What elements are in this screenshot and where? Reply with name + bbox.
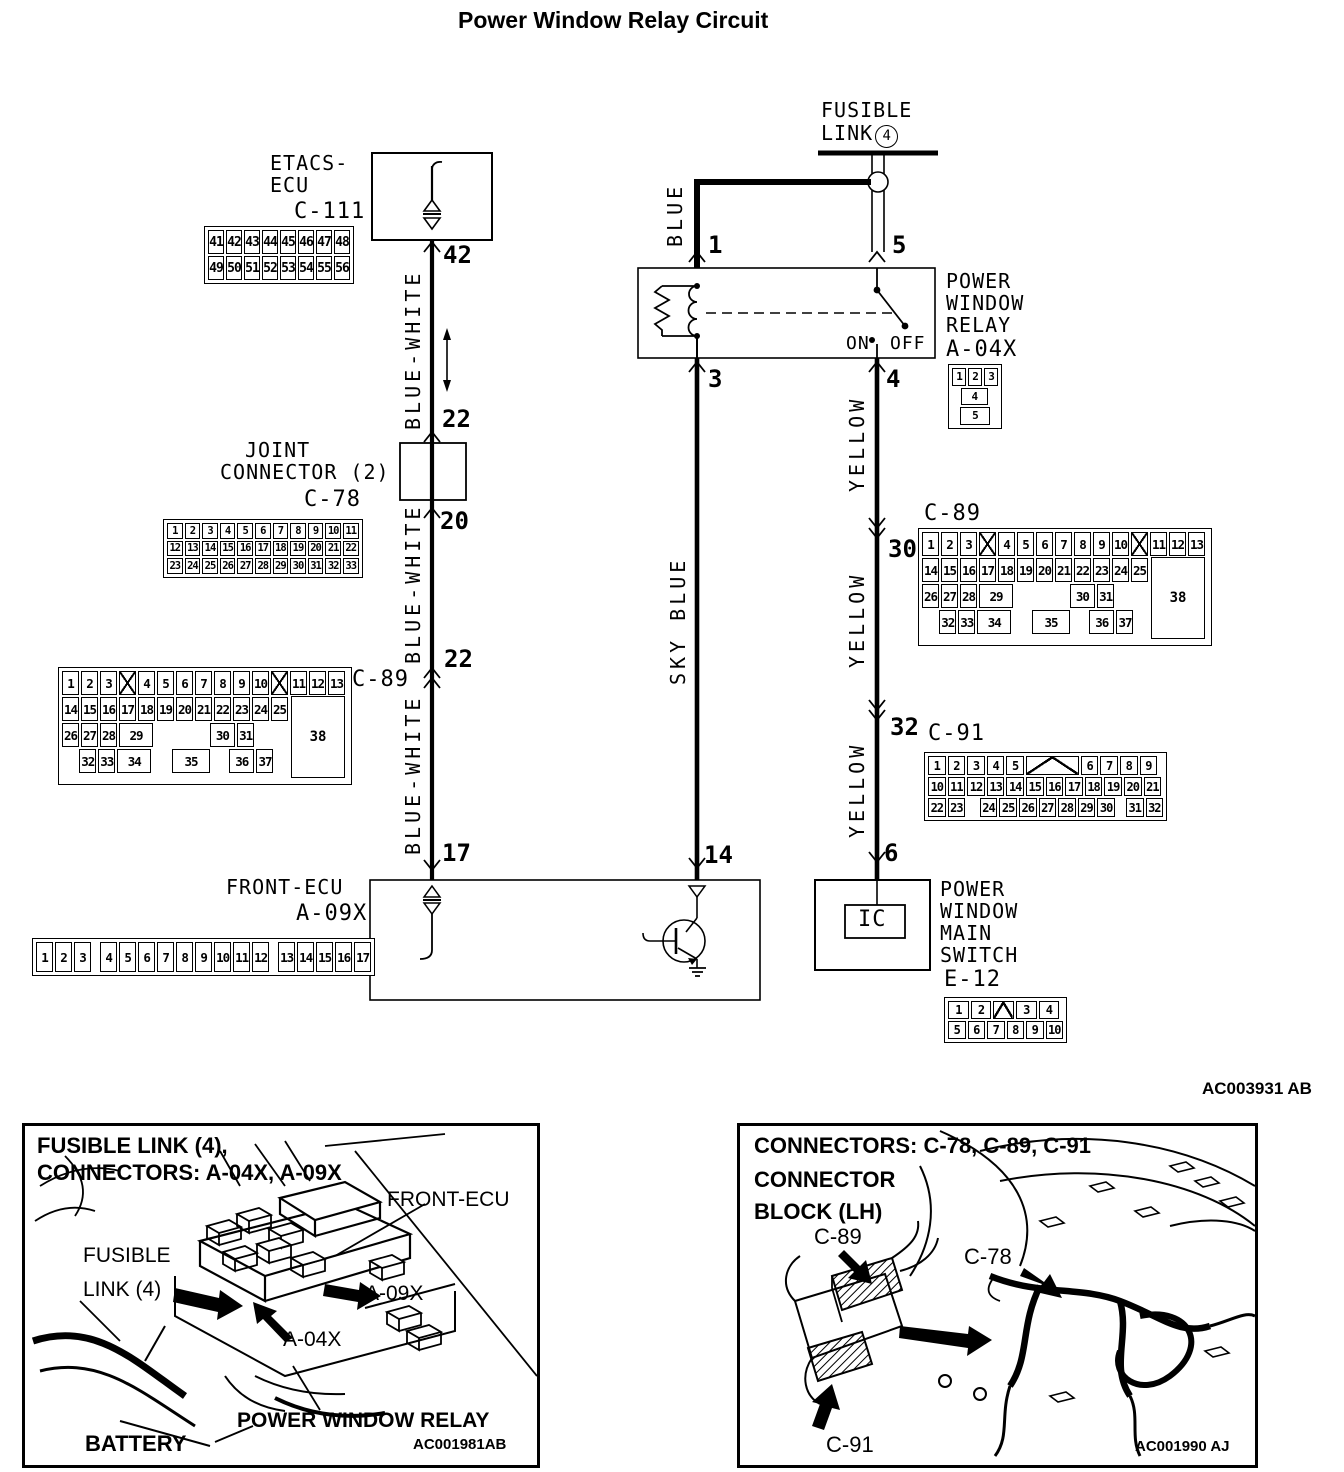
pin-cell: [62, 749, 77, 773]
panel-left-battery: BATTERY: [85, 1431, 186, 1456]
connector-e12: 12345678910: [944, 997, 1067, 1043]
pin-cell: 29: [273, 558, 289, 574]
pin-cell: 4: [138, 671, 155, 695]
e12-id: E-12: [944, 968, 1001, 992]
pin-cell: 1: [62, 671, 79, 695]
panel-left-relay: POWER WINDOW RELAY: [237, 1409, 489, 1433]
pin-cell: 21: [1055, 558, 1072, 582]
front-ecu-label: FRONT-ECU: [226, 876, 343, 898]
c78-id: C-78: [304, 488, 361, 512]
pin-cell: 29: [979, 584, 1013, 608]
pin-cell: 4: [1039, 1001, 1060, 1019]
pin-cell: 33: [98, 749, 115, 773]
pin-cell: 6: [968, 1021, 986, 1039]
pin-cell: [155, 723, 208, 747]
pin-cell: 34: [117, 749, 151, 773]
pin-cell: 7: [987, 1021, 1005, 1039]
pin-cell: 15: [1026, 777, 1044, 796]
pin-cell: 7: [1100, 756, 1118, 775]
pin-cell: 5: [157, 671, 174, 695]
pin-cell: 56: [334, 256, 350, 280]
pin-cell: 9: [308, 523, 324, 539]
pin-cell: 14: [1006, 777, 1024, 796]
pin-cell: 51: [244, 256, 260, 280]
pin-30: 30: [888, 536, 917, 562]
pin-cell: 20: [308, 541, 324, 557]
pin-cell: 3: [100, 671, 117, 695]
pin-cell: 33: [343, 558, 359, 574]
pin-cell: 17: [354, 942, 371, 972]
pin-cell: 15: [81, 697, 98, 721]
pin-cell: 4: [987, 756, 1005, 775]
pin-cell: 11: [1150, 532, 1167, 556]
wire-blue-white-3: BLUE-WHITE: [401, 695, 425, 855]
pin-cell: 34: [977, 610, 1011, 634]
pin-cell: 35: [172, 749, 209, 773]
fusible-link-label-2: LINK4: [821, 122, 898, 148]
pin-cell: [992, 407, 998, 425]
pin-cell: 25: [202, 558, 218, 574]
pin-cell: 22: [214, 697, 231, 721]
c89-pin-38: 38: [1151, 557, 1205, 639]
pin-cell: 15: [316, 942, 333, 972]
pin-cell: [1013, 610, 1030, 634]
pin-cell: 47: [316, 230, 332, 254]
pin-cell: 36: [229, 749, 255, 773]
pin-cell: 45: [280, 230, 296, 254]
pin-cell: 30: [290, 558, 306, 574]
pin-cell: 1: [928, 756, 946, 775]
pin-cell: 5: [948, 1021, 966, 1039]
sky-blue-wire: [689, 358, 705, 880]
pin-cell: 13: [987, 777, 1005, 796]
pin-cell: 14: [202, 541, 218, 557]
pin-cell: 24: [980, 798, 998, 817]
pin-cell: 2: [81, 671, 98, 695]
pin-cell: 8: [1120, 756, 1138, 775]
panel-right-c89: C-89: [814, 1224, 862, 1249]
pin-cell: 5: [960, 407, 991, 425]
pin-cell: 17: [979, 558, 996, 582]
pin-cell: 19: [1104, 777, 1122, 796]
two-way-arrow: [443, 328, 451, 392]
panel-left-code: AC001981AB: [413, 1436, 506, 1453]
c111-id: C-111: [294, 200, 365, 224]
pin-cell: 13: [185, 541, 201, 557]
pin-cell: 32: [79, 749, 96, 773]
connector-a09x: 1234567891011121314151617: [32, 938, 375, 976]
pin-20: 20: [440, 508, 469, 534]
pin-cell: 31: [1097, 584, 1114, 608]
pin-cell: 22: [928, 798, 946, 817]
joint-connector-label-1: JOINT: [245, 439, 310, 461]
ic-label: IC: [858, 908, 887, 932]
pin-cell: 27: [1039, 798, 1057, 817]
pin-cell: 4: [100, 942, 117, 972]
pin-cell: 36: [1089, 610, 1115, 634]
pin-cell: 6: [1036, 532, 1053, 556]
pin-cell: [1015, 584, 1068, 608]
pin-cell: 17: [255, 541, 271, 557]
panel-right-sub-1: CONNECTOR: [754, 1166, 895, 1194]
pin-cell: 5: [1017, 532, 1034, 556]
main-switch-label-4: SWITCH: [940, 944, 1018, 966]
fusible-link-number: 4: [875, 125, 898, 148]
pin-cell: [212, 749, 227, 773]
pin-cell: 12: [1169, 532, 1186, 556]
pin-cell: 53: [280, 256, 296, 280]
pin-cell: 43: [244, 230, 260, 254]
pin-cell: 19: [290, 541, 306, 557]
pin-cell: 20: [1124, 777, 1142, 796]
panel-left-title-2: CONNECTORS: A-04X, A-09X: [37, 1159, 342, 1187]
pin-cell: 20: [176, 697, 193, 721]
pin-cell: 10: [1046, 1021, 1064, 1039]
c89-pin-38: 38: [291, 696, 345, 778]
pin-cell: 31: [308, 558, 324, 574]
pin-cell: 44: [262, 230, 278, 254]
pin-cell: 4: [961, 388, 988, 406]
main-switch-label-2: WINDOW: [940, 900, 1018, 922]
panel-left-a09x: A-09X: [365, 1282, 423, 1306]
front-ecu-box: [370, 880, 760, 1000]
yellow-wire: [869, 358, 885, 880]
panel-left-a04x: A-04X: [283, 1328, 341, 1352]
pin-cell: 54: [298, 256, 314, 280]
pin-14: 14: [704, 842, 733, 868]
pin-cell: 16: [1046, 777, 1064, 796]
pin-cell: 50: [226, 256, 242, 280]
pin-cell: 30: [1070, 584, 1096, 608]
pin-cell: 27: [941, 584, 958, 608]
pin-cell: [119, 671, 136, 695]
pin-cell: 23: [1093, 558, 1110, 582]
pin-cell: [979, 532, 996, 556]
pin-cell: 5: [237, 523, 253, 539]
pin-32: 32: [890, 714, 919, 740]
wire-blue: BLUE: [663, 183, 687, 247]
pin-cell: 52: [262, 256, 278, 280]
connector-c78: 1234567891011121314151617181920212223242…: [163, 519, 363, 578]
pin-cell: [990, 388, 998, 406]
pin-cell: 31: [1126, 798, 1144, 817]
relay-label-1: POWER: [946, 270, 1011, 292]
pin-cell: 24: [1112, 558, 1129, 582]
pin-cell: 11: [948, 777, 966, 796]
pin-6: 6: [884, 840, 898, 866]
pin-cell: 12: [167, 541, 183, 557]
pin-cell: [1131, 532, 1148, 556]
pin-cell: 6: [1081, 756, 1099, 775]
pin-cell: 3: [74, 942, 91, 972]
pin-cell: 3: [984, 368, 998, 386]
pin-cell: 1: [922, 532, 939, 556]
pin-cell: 3: [967, 756, 985, 775]
pin-cell: 8: [214, 671, 231, 695]
pin-cell: 1: [952, 368, 966, 386]
pin-cell: 26: [220, 558, 236, 574]
pin-cell: 17: [119, 697, 136, 721]
pin-cell: 13: [328, 671, 345, 695]
diagram-code: AC003931 AB: [1202, 1080, 1312, 1099]
pin-cell: 14: [62, 697, 79, 721]
wire-blue-white-2: BLUE-WHITE: [401, 504, 425, 664]
pin-cell: 12: [252, 942, 269, 972]
pin-cell: 13: [278, 942, 295, 972]
etacs-label-1: ETACS-: [270, 152, 348, 174]
pin-42: 42: [443, 242, 472, 268]
pin-cell: 19: [157, 697, 174, 721]
pin-cell: 5: [1006, 756, 1024, 775]
pin-3: 3: [708, 366, 722, 392]
pin-cell: 8: [1074, 532, 1091, 556]
pin-cell: 8: [1007, 1021, 1025, 1039]
pin-cell: 7: [1055, 532, 1072, 556]
pin-cell: 31: [237, 723, 254, 747]
pin-cell: 10: [214, 942, 231, 972]
panel-right-title: CONNECTORS: C-78, C-89, C-91: [754, 1132, 1091, 1160]
relay-on-label: ON: [846, 334, 870, 354]
pin-cell: [967, 798, 978, 817]
pin-cell: 16: [960, 558, 977, 582]
pin-cell: 10: [325, 523, 341, 539]
wire-yellow-2: YELLOW: [845, 572, 869, 668]
pin-cell: 10: [1112, 532, 1129, 556]
pin-cell: 11: [233, 942, 250, 972]
fusible-link-label-1: FUSIBLE: [821, 99, 912, 121]
pin-cell: 4: [998, 532, 1015, 556]
pin-cell: 9: [195, 942, 212, 972]
relay-off-label: OFF: [890, 334, 926, 354]
connector-a04x: 12345: [948, 364, 1002, 429]
a09x-id: A-09X: [296, 902, 367, 926]
wiring-diagram-page: Power Window Relay Circuit ETACS- ECU C-…: [0, 0, 1344, 1472]
pin-cell: 30: [1097, 798, 1115, 817]
c89-right-id: C-89: [924, 502, 981, 526]
pin-cell: 8: [290, 523, 306, 539]
pin-cell: [952, 407, 958, 425]
pin-cell: 2: [968, 368, 982, 386]
pin-cell: 11: [290, 671, 307, 695]
pin-cell: 26: [62, 723, 79, 747]
pin-17: 17: [442, 840, 471, 866]
pin-cell: 26: [1019, 798, 1037, 817]
pin-cell: 6: [176, 671, 193, 695]
panel-right-code: AC001990 AJ: [1135, 1438, 1230, 1455]
panel-fusible-link: FUSIBLE LINK (4), CONNECTORS: A-04X, A-0…: [22, 1123, 540, 1468]
pin-cell: 2: [185, 523, 201, 539]
pin-cell: 10: [252, 671, 269, 695]
pin-cell: [952, 388, 959, 406]
pin-cell: 18: [1085, 777, 1103, 796]
pin-cell: 5: [119, 942, 136, 972]
pin-cell: 1: [948, 1001, 969, 1019]
pin-cell: [271, 942, 276, 972]
connector-c89-right: 38 1234567891011121314151617181920212223…: [918, 528, 1212, 646]
pin-cell: 21: [195, 697, 212, 721]
pin-1: 1: [708, 232, 722, 258]
pin-cell: 17: [1065, 777, 1083, 796]
pin-cell: 2: [55, 942, 72, 972]
etacs-ecu-box: [372, 153, 492, 240]
pin-cell: 21: [1144, 777, 1162, 796]
fusible-link-symbol: [818, 153, 938, 262]
pin-cell: 15: [220, 541, 236, 557]
pin-cell: 26: [922, 584, 939, 608]
pin-cell: 24: [252, 697, 269, 721]
blue-white-wire: [424, 240, 440, 880]
page-title: Power Window Relay Circuit: [458, 8, 768, 33]
pin-cell: 8: [176, 942, 193, 972]
pin-cell: 13: [1188, 532, 1205, 556]
pin-cell: 9: [233, 671, 250, 695]
pin-cell: [93, 942, 98, 972]
pin-cell: 16: [237, 541, 253, 557]
panel-left-frontecu: FRONT-ECU: [387, 1188, 510, 1212]
connector-c91: 1234567891011121314151617181920212223242…: [924, 752, 1167, 821]
pin-cell: 14: [922, 558, 939, 582]
pin-cell: 35: [1032, 610, 1069, 634]
pin-cell: 18: [998, 558, 1015, 582]
pin-cell: 6: [138, 942, 155, 972]
pin-cell: 49: [208, 256, 224, 280]
pin-cell: 28: [100, 723, 117, 747]
pin-cell: 32: [325, 558, 341, 574]
main-switch-label-3: MAIN: [940, 922, 992, 944]
pin-cell: 3: [202, 523, 218, 539]
pin-cell: 28: [960, 584, 977, 608]
pin-cell: 30: [210, 723, 236, 747]
pin-cell: 14: [297, 942, 314, 972]
wire-yellow-1: YELLOW: [845, 396, 869, 492]
panel-right-c78: C-78: [964, 1244, 1012, 1269]
pin-cell: 1: [167, 523, 183, 539]
relay-label-3: RELAY: [946, 314, 1011, 336]
pin-cell: 29: [119, 723, 153, 747]
pin-cell: 37: [1116, 610, 1133, 634]
panel-left-title-1: FUSIBLE LINK (4),: [37, 1132, 228, 1160]
pin-cell: 23: [167, 558, 183, 574]
panel-left-fusible-2: LINK (4): [83, 1278, 161, 1302]
connector-c89-left: 38 1234567891011121314151617181920212223…: [58, 667, 352, 785]
pin-cell: 9: [1140, 756, 1158, 775]
pin-cell: 7: [195, 671, 212, 695]
pin-cell: 7: [273, 523, 289, 539]
pin-cell: 41: [208, 230, 224, 254]
pin-cell: 24: [185, 558, 201, 574]
pin-cell: 10: [928, 777, 946, 796]
pin-cell: 7: [157, 942, 174, 972]
pin-cell: 32: [1146, 798, 1164, 817]
c89-left-id: C-89: [352, 668, 409, 692]
pin-cell: 27: [81, 723, 98, 747]
pin-22-lower: 22: [444, 646, 473, 672]
panel-left-fusible-1: FUSIBLE: [83, 1244, 171, 1268]
pin-cell: 12: [309, 671, 326, 695]
panel-connector-block: CONNECTORS: C-78, C-89, C-91 CONNECTOR B…: [737, 1123, 1258, 1468]
a04x-id: A-04X: [946, 338, 1017, 362]
pin-cell: 6: [255, 523, 271, 539]
pin-cell: 33: [958, 610, 975, 634]
pin-cell: 46: [298, 230, 314, 254]
wire-blue-white-1: BLUE-WHITE: [401, 270, 425, 430]
pin-cell: 22: [1074, 558, 1091, 582]
pin-cell: 37: [256, 749, 273, 773]
pin-cell: 1: [36, 942, 53, 972]
pin-4: 4: [886, 366, 900, 392]
pin-cell: 21: [325, 541, 341, 557]
pin-22-upper: 22: [442, 406, 471, 432]
pin-cell: 12: [967, 777, 985, 796]
pin-cell: 18: [138, 697, 155, 721]
pin-cell: 18: [273, 541, 289, 557]
relay-label-2: WINDOW: [946, 292, 1024, 314]
pin-cell: 25: [271, 697, 288, 721]
pin-cell: 48: [334, 230, 350, 254]
joint-connector-label-2: CONNECTOR (2): [220, 461, 390, 483]
wire-sky-blue: SKY BLUE: [666, 557, 690, 685]
pin-cell: 9: [1093, 532, 1110, 556]
pin-cell: [922, 610, 937, 634]
pin-cell: 22: [343, 541, 359, 557]
pin-cell: [1072, 610, 1087, 634]
panel-right-c91: C-91: [826, 1432, 874, 1457]
pin-cell: 23: [948, 798, 966, 817]
pin-cell: 4: [220, 523, 236, 539]
c91-id: C-91: [928, 722, 985, 746]
pin-cell: 15: [941, 558, 958, 582]
pin-cell: 25: [999, 798, 1017, 817]
pin-cell: [271, 671, 288, 695]
pin-cell: 25: [1131, 558, 1148, 582]
pin-5: 5: [892, 232, 906, 258]
pin-cell: 16: [335, 942, 352, 972]
connector-c111: 41424344454647484950515253545556: [204, 226, 354, 284]
pin-cell: 3: [1016, 1001, 1037, 1019]
pin-cell: 9: [1026, 1021, 1044, 1039]
pin-cell: 16: [100, 697, 117, 721]
pin-cell: 11: [343, 523, 359, 539]
pin-cell: [1026, 756, 1079, 775]
main-switch-label-1: POWER: [940, 878, 1005, 900]
pin-cell: 20: [1036, 558, 1053, 582]
pin-cell: [1117, 798, 1124, 817]
pin-cell: [153, 749, 170, 773]
panel-right-sub-2: BLOCK (LH): [754, 1198, 882, 1226]
pin-cell: 28: [1058, 798, 1076, 817]
pin-cell: 19: [1017, 558, 1034, 582]
pin-cell: [993, 1001, 1014, 1019]
wire-yellow-3: YELLOW: [845, 742, 869, 838]
pin-cell: 2: [948, 756, 966, 775]
pin-cell: 23: [233, 697, 250, 721]
pin-cell: 2: [971, 1001, 992, 1019]
pin-cell: 3: [960, 532, 977, 556]
etacs-label-2: ECU: [270, 174, 309, 196]
pin-cell: 28: [255, 558, 271, 574]
pin-cell: 32: [939, 610, 956, 634]
pin-cell: 55: [316, 256, 332, 280]
pin-cell: 42: [226, 230, 242, 254]
pin-cell: 2: [941, 532, 958, 556]
pin-cell: 29: [1078, 798, 1096, 817]
pin-cell: 27: [237, 558, 253, 574]
